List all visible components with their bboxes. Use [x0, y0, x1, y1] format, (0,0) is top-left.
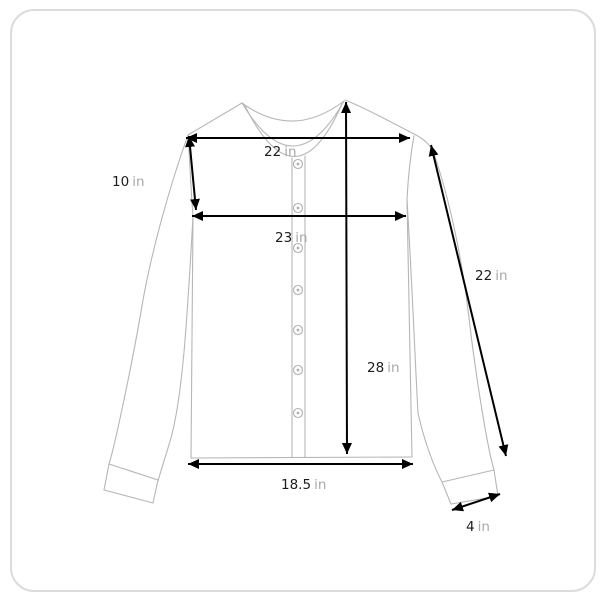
body-length-arrow: [346, 102, 347, 454]
sleeve-length-arrow: [431, 145, 506, 456]
left-cuff: [104, 464, 158, 503]
shoulder-width-unit: in: [284, 144, 296, 160]
right-shoulder-line: [345, 100, 433, 151]
shoulder-width-label: 22in: [264, 144, 297, 160]
back-neck-arc: [242, 101, 344, 121]
button-icon: [294, 286, 303, 295]
sleeve-length-unit: in: [495, 268, 507, 284]
cuff-width-unit: in: [478, 519, 490, 535]
right-sleeve-outer: [433, 151, 494, 470]
hem-line: [191, 457, 412, 458]
chest-width-value: 23: [275, 230, 292, 246]
hem-width-label: 18.5in: [281, 477, 326, 493]
button-icon: [294, 366, 303, 375]
button-icon: [294, 204, 303, 213]
armhole-depth-value: 10: [112, 174, 129, 190]
hem-width-unit: in: [314, 477, 326, 493]
hem-width-value: 18.5: [281, 477, 311, 493]
left-shoulder-line: [188, 103, 242, 135]
cuff-width-value: 4: [466, 519, 475, 535]
placket-buttons: [294, 160, 303, 418]
body-length-label: 28in: [367, 360, 400, 376]
sleeve-length-value: 22: [475, 268, 492, 284]
neckband-outer-arc: [242, 101, 344, 146]
shoulder-width-value: 22: [264, 144, 281, 160]
left-sleeve-inner: [158, 217, 193, 481]
button-icon: [294, 160, 303, 169]
armhole-depth-unit: in: [132, 174, 144, 190]
right-cuff: [442, 470, 498, 504]
cardigan-measurement-diagram: [0, 0, 600, 600]
right-armhole-seam: [407, 136, 414, 200]
body-length-value: 28: [367, 360, 384, 376]
body-length-unit: in: [387, 360, 399, 376]
armhole-depth-label: 10in: [112, 174, 145, 190]
right-sleeve-inner: [407, 200, 442, 482]
chest-width-label: 23in: [275, 230, 308, 246]
chest-width-unit: in: [295, 230, 307, 246]
cuff-width-label: 4in: [466, 519, 490, 535]
button-icon: [294, 409, 303, 418]
cuff-width-arrow: [452, 494, 500, 510]
sleeve-length-label: 22in: [475, 268, 508, 284]
measurement-arrows: [186, 102, 506, 510]
size-diagram-panel: 22in 10in 23in 22in 28in 18.5in 4in: [0, 0, 600, 600]
button-icon: [294, 326, 303, 335]
